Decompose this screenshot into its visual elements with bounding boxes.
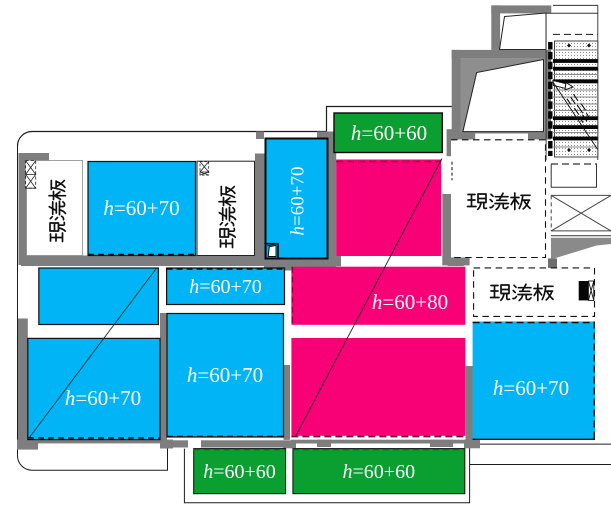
svg-text:h=60+70: h=60+70 — [65, 386, 141, 410]
svg-text:h=60+70: h=60+70 — [189, 276, 262, 298]
svg-text:h=60+70: h=60+70 — [187, 363, 263, 387]
svg-text:h=60+70: h=60+70 — [103, 196, 179, 220]
svg-text:h=60+60: h=60+60 — [343, 461, 416, 483]
svg-text:h=60+70: h=60+70 — [288, 167, 309, 236]
svg-text:h=60+60: h=60+60 — [351, 121, 427, 145]
svg-text:h=60+60: h=60+60 — [203, 461, 276, 483]
svg-text:h=60+70: h=60+70 — [493, 376, 569, 400]
svg-text:h=60+80: h=60+80 — [372, 290, 448, 314]
